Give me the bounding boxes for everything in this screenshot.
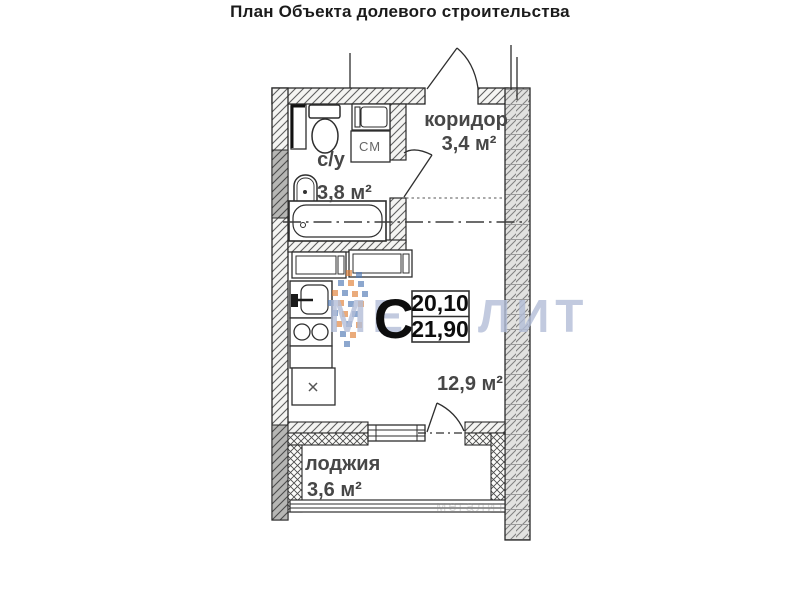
unit-area-living: 20,10 <box>411 290 469 316</box>
bathtub-icon <box>289 201 386 241</box>
wall-bathroom-right-lower <box>390 198 406 242</box>
corridor-area: 3,4 м² <box>442 133 497 155</box>
corridor-name: коридор <box>424 109 508 131</box>
bathroom-area: 3,8 м² <box>317 182 372 204</box>
loggia-area: 3,6 м² <box>307 479 362 501</box>
washing-machine-icon <box>352 104 390 130</box>
watermark-text-faint: мегалит <box>436 498 506 515</box>
toilet-icon <box>309 105 340 153</box>
wall-balcony-left-cross <box>288 433 368 445</box>
counter <box>290 346 332 368</box>
wall-bathroom-right-upper <box>390 104 406 160</box>
entrance-door <box>427 48 478 89</box>
bathroom-door <box>404 150 432 197</box>
wall-left-shaft <box>272 150 288 218</box>
cabinet-icon <box>291 105 306 149</box>
kitchen-sink-icon <box>290 281 332 318</box>
bathroom-name: с/у <box>317 149 346 171</box>
bathroom-fixtures: СМ <box>289 104 390 241</box>
wall-balcony-left-hatch <box>288 422 368 433</box>
wall-top-left <box>272 88 425 104</box>
wall-left-bottom <box>272 425 288 520</box>
window-icon <box>368 425 425 441</box>
crossed-box-icon <box>292 368 335 405</box>
closet-icon <box>292 252 346 278</box>
loggia-name: лоджия <box>305 453 380 475</box>
floor-plan: СМ <box>0 0 800 600</box>
wall-balcony-right-hatch <box>465 422 505 433</box>
washing-machine-box: СМ <box>351 131 390 162</box>
main-room-area: 12,9 м² <box>437 373 503 395</box>
unit-type-letter: С <box>374 287 414 350</box>
washing-machine-label: СМ <box>359 139 381 154</box>
unit-area-total: 21,90 <box>411 316 469 342</box>
unit-stamp: С 20,10 21,90 <box>374 287 469 350</box>
stove-icon <box>290 318 332 346</box>
wall-top-right <box>478 88 508 104</box>
